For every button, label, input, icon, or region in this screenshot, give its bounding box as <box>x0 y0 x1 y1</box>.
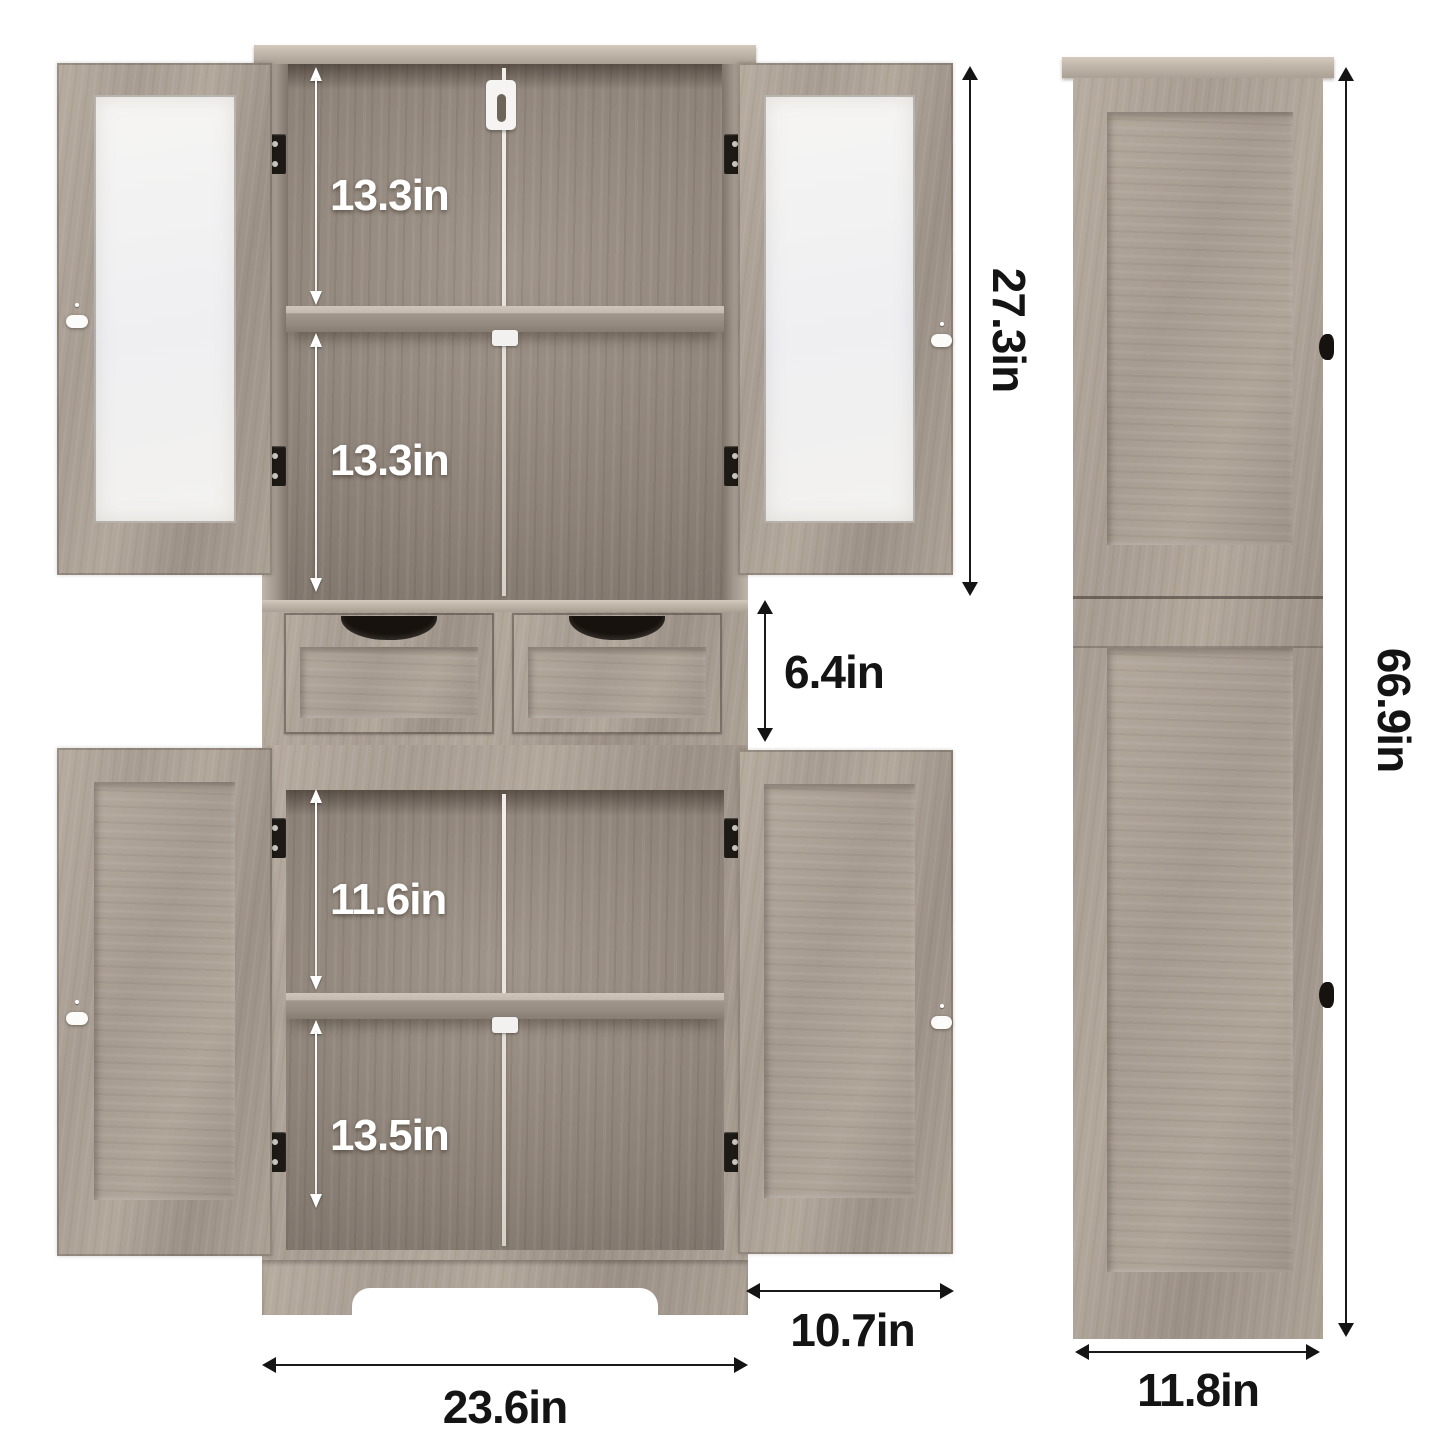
dimension-label-upper-shelf-1: 13.3in <box>330 172 449 220</box>
bracket-slot <box>497 94 506 122</box>
frosted-glass-panel <box>94 95 236 523</box>
dimension-line <box>315 79 317 293</box>
dimension-arrowhead <box>746 1283 760 1299</box>
dimension-arrowhead <box>262 1357 276 1373</box>
shelf-clip <box>492 1017 518 1033</box>
dimension-label-drawer-height: 6.4in <box>784 648 884 696</box>
lower-left-door <box>57 748 272 1256</box>
drawer-cutout-handle <box>569 616 665 640</box>
dimension-label-lower-shelf-2: 13.5in <box>330 1112 449 1160</box>
door-handle <box>66 1012 88 1025</box>
dimension-line <box>969 80 971 582</box>
upper-middle-shelf <box>286 306 724 332</box>
dimension-arrowhead <box>310 1194 322 1208</box>
door-shaker-panel <box>94 782 235 1200</box>
dimension-line <box>1089 1351 1306 1353</box>
handle-screw <box>75 303 79 307</box>
handle-screw <box>940 322 944 326</box>
door-handle <box>931 334 952 347</box>
drawer-cutout-handle <box>341 616 437 640</box>
dimension-line <box>315 345 317 580</box>
dimension-arrowhead <box>757 600 773 614</box>
door-shaker-panel <box>764 784 915 1198</box>
frosted-glass-panel <box>764 95 915 523</box>
dimension-arrowhead <box>757 728 773 742</box>
dimension-arrowhead <box>962 582 978 596</box>
dimension-line <box>1345 81 1347 1323</box>
drawer-shaker-panel <box>528 647 706 718</box>
drawer-section-top-edge <box>262 600 748 612</box>
upper-left-glass-door <box>57 63 272 575</box>
dimension-line <box>315 1032 317 1196</box>
cabinet-dimension-diagram: 13.3in 13.3in 27.3in 6.4in <box>0 0 1445 1445</box>
dimension-arrowhead <box>310 578 322 592</box>
lower-right-door <box>738 750 953 1254</box>
dimension-arrowhead <box>734 1357 748 1373</box>
dimension-label-upper-shelf-2: 13.3in <box>330 437 449 485</box>
dimension-arrowhead <box>962 66 978 80</box>
dimension-line <box>315 801 317 978</box>
drawer <box>284 613 494 734</box>
dimension-arrowhead <box>310 291 322 305</box>
dimension-label-lower-shelf-1: 11.6in <box>330 876 446 924</box>
dimension-arrowhead <box>1338 1323 1354 1337</box>
dimension-line <box>764 614 766 728</box>
hinge-knuckle <box>1319 334 1334 360</box>
dimension-arrowhead <box>1306 1344 1320 1360</box>
dimension-label-depth: 11.8in <box>1068 1366 1328 1414</box>
side-view-upper-panel <box>1107 112 1293 545</box>
dimension-label-total-height: 66.9in <box>1370 625 1418 795</box>
handle-screw <box>940 1004 944 1008</box>
lower-middle-shelf <box>286 993 724 1019</box>
dimension-label-door-width: 10.7in <box>745 1306 960 1354</box>
side-view-section-seam <box>1073 596 1323 599</box>
door-handle <box>66 315 88 328</box>
dimension-arrowhead <box>310 976 322 990</box>
door-handle <box>931 1016 952 1029</box>
cabinet-top-board <box>254 45 756 64</box>
dimension-label-cabinet-width: 23.6in <box>375 1383 635 1431</box>
side-view-lower-panel <box>1107 648 1293 1272</box>
anti-tip-bracket <box>486 80 516 130</box>
upper-right-glass-door <box>738 63 953 575</box>
side-view-top-board <box>1062 57 1334 78</box>
shelf-clip <box>492 330 518 346</box>
handle-screw <box>75 1000 79 1004</box>
dimension-arrowhead <box>1075 1344 1089 1360</box>
dimension-line <box>760 1290 940 1292</box>
dimension-line <box>276 1364 734 1366</box>
drawer <box>512 613 722 734</box>
dimension-arrowhead <box>940 1283 954 1299</box>
dimension-label-upper-height: 27.3in <box>985 250 1033 410</box>
dimension-arrowhead <box>1338 67 1354 81</box>
drawer-shaker-panel <box>300 647 478 718</box>
hinge-knuckle <box>1319 982 1334 1008</box>
base-arch-cutout <box>352 1288 658 1315</box>
